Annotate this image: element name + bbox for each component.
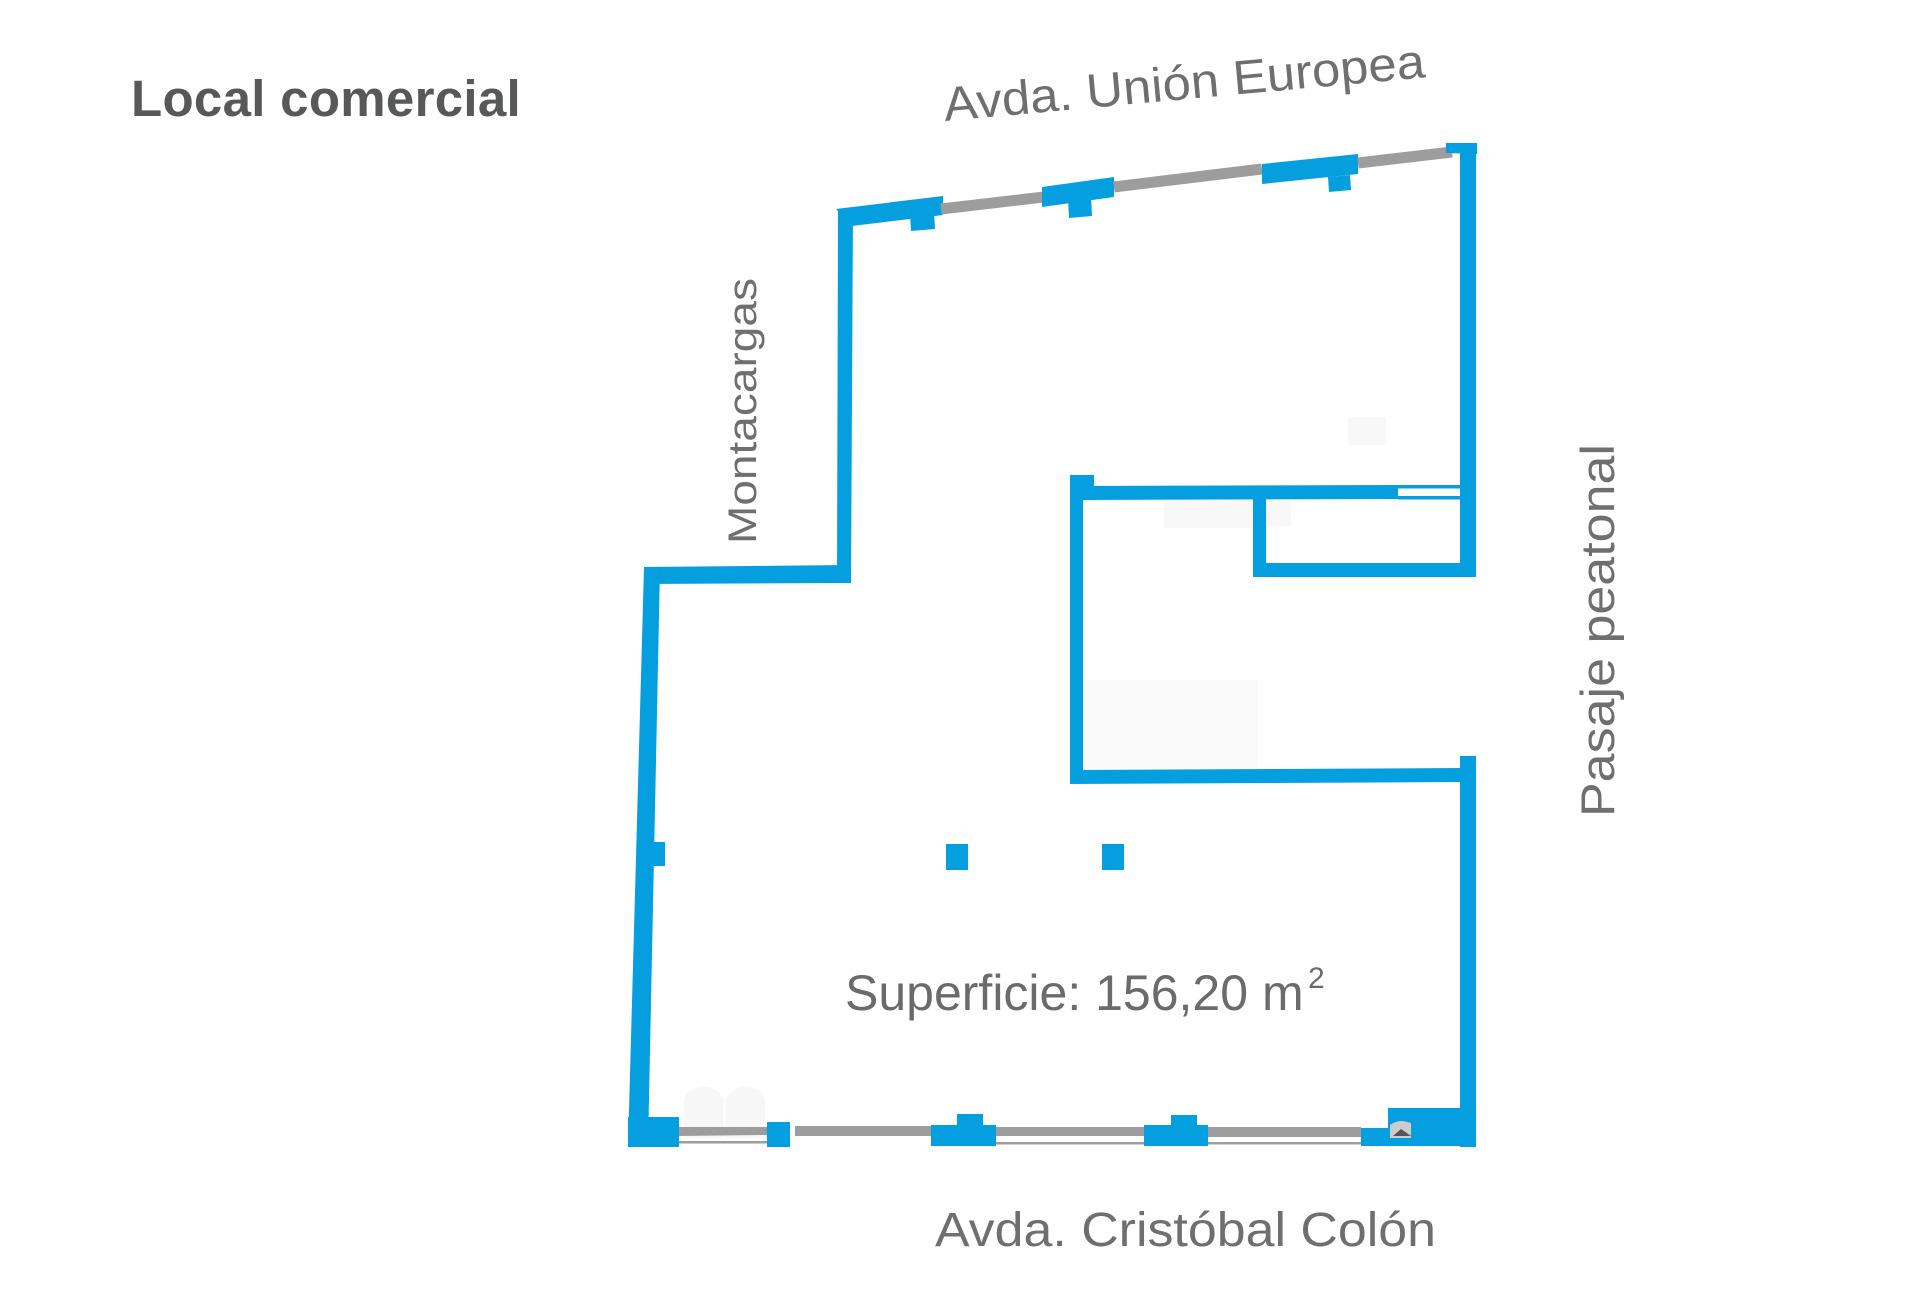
svg-text:Superficie: 156,20 m: Superficie: 156,20 m — [845, 965, 1304, 1021]
svg-text:2: 2 — [1308, 962, 1325, 995]
svg-text:Avda. Cristóbal Colón: Avda. Cristóbal Colón — [935, 1204, 1436, 1257]
svg-text:Pasaje peatonal: Pasaje peatonal — [1571, 444, 1624, 817]
svg-text:Montacargas: Montacargas — [721, 278, 765, 544]
svg-text:Local comercial: Local comercial — [131, 70, 521, 127]
